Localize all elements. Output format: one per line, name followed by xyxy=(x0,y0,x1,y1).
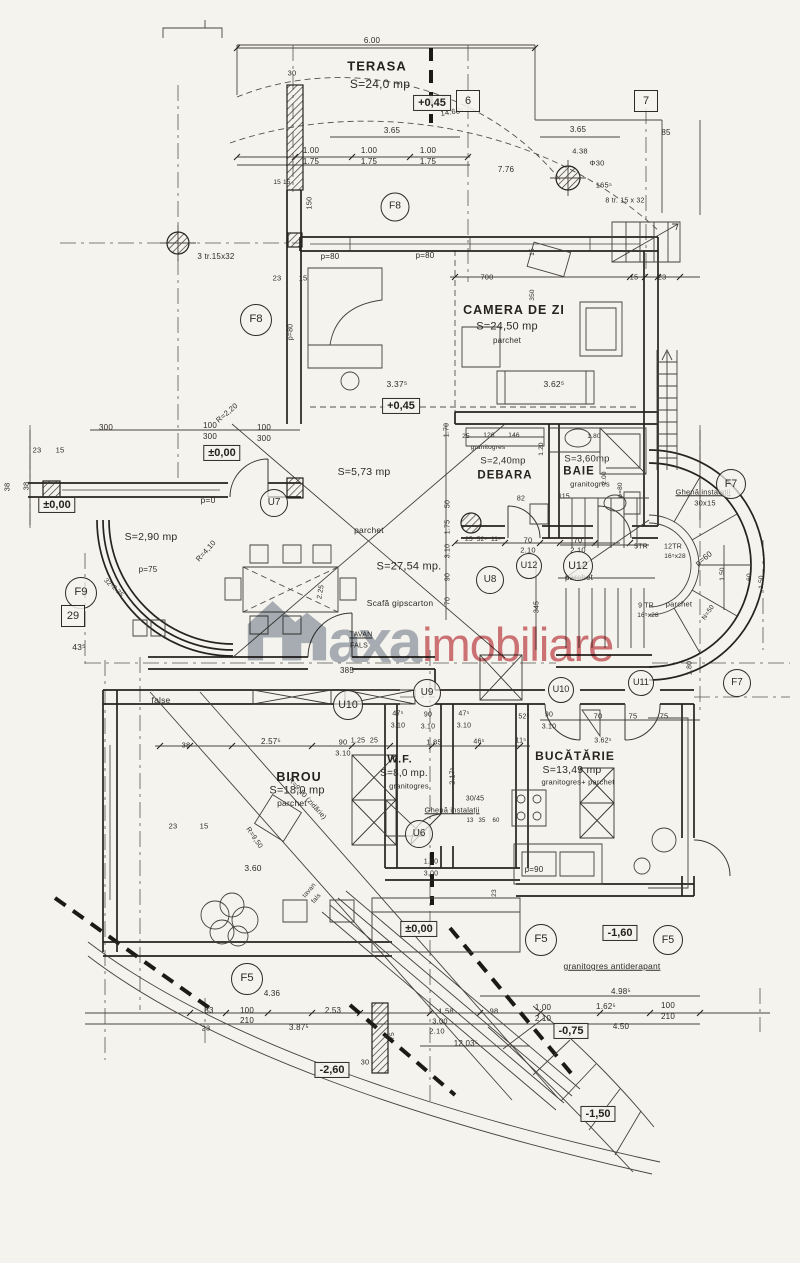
dim-label: 16⁵x28 xyxy=(664,554,686,561)
dim-label: 4.38 xyxy=(572,147,587,155)
dim-label: 7.76 xyxy=(498,166,514,174)
tag-u7: U7 xyxy=(260,489,288,517)
dim-label: S=8,0 mp. xyxy=(380,769,428,779)
dim-label: 3.10 xyxy=(457,723,471,730)
dim-label: 2.10 xyxy=(535,1015,551,1023)
dim-label: Φ30 xyxy=(590,159,605,167)
tag-u6: U6 xyxy=(405,820,433,848)
dim-label: 38 xyxy=(3,483,11,492)
dim-label: 6.00 xyxy=(364,37,380,45)
dim-label: 75 xyxy=(660,712,669,720)
dim-label: 15 xyxy=(530,248,537,256)
dim-label: 3.62⁵ xyxy=(543,380,564,389)
dim-label: 3.00 xyxy=(424,871,438,878)
dim-label: S=27,54 mp. xyxy=(377,562,442,573)
dim-label: p=75 xyxy=(139,566,158,574)
dim-label: Ghenă instalații xyxy=(425,806,480,814)
dim-label: 1.00 xyxy=(361,147,377,155)
dim-label: 30/45 xyxy=(466,796,485,803)
dim-label: 4.36 xyxy=(264,990,280,998)
level-marker: -1,50 xyxy=(580,1106,615,1122)
dim-label: 11⁵ xyxy=(516,738,527,745)
dim-label: 52⁵ xyxy=(518,714,529,721)
dim-label: S=2,90 mp xyxy=(125,532,178,543)
dim-label: 3.37⁵ xyxy=(386,380,407,389)
tag-f5: F5 xyxy=(653,925,683,955)
room-label: BIROU xyxy=(276,771,321,784)
tag-u12: U12 xyxy=(516,553,542,579)
dim-label: 5TR xyxy=(634,544,648,551)
dim-label: 3.10 xyxy=(335,749,350,757)
tag-u12: U12 xyxy=(563,551,593,581)
room-label: TERASA xyxy=(347,60,406,73)
dim-label: 30 xyxy=(288,69,297,77)
dim-label: 1.00 xyxy=(420,147,436,155)
dim-label: 25 xyxy=(465,537,473,544)
dim-label: 82 xyxy=(517,496,525,503)
tag-f8: F8 xyxy=(381,193,410,222)
dim-label: 3.00 xyxy=(432,1017,447,1025)
dim-label: 75 xyxy=(390,1032,397,1040)
dim-label: 2.10 xyxy=(429,1027,444,1035)
tag-u11: U11 xyxy=(628,670,654,696)
dim-label: 75 xyxy=(629,712,638,720)
dim-label: 43⁵ xyxy=(72,643,86,652)
dim-label: 1.70 xyxy=(444,423,451,437)
grid-tag-6: 6 xyxy=(456,90,480,112)
level-marker: ±0,00 xyxy=(400,921,437,937)
dim-label: 13 xyxy=(466,818,473,824)
dim-label: 3 tr.15x32 xyxy=(197,253,234,261)
dim-label: granitogres+ parchet xyxy=(541,778,614,786)
dim-label: 126 xyxy=(483,433,494,440)
dim-label: parchet xyxy=(493,337,521,345)
dim-label: 23 xyxy=(273,274,282,282)
dim-label: 1.50 xyxy=(759,575,766,588)
dim-label: parchet xyxy=(354,526,384,535)
dim-label: 300 xyxy=(99,424,113,432)
dim-label: 15 xyxy=(56,446,65,454)
dim-label: 35 xyxy=(478,818,485,824)
dim-label: p=80 xyxy=(288,324,295,341)
dim-label: 1.85 xyxy=(426,738,441,746)
dim-label: 3.62⁵ xyxy=(594,738,612,745)
room-label: BAIE xyxy=(563,466,594,478)
dim-label: 1.00 xyxy=(424,859,438,866)
dim-label: 83 xyxy=(204,1007,213,1015)
dim-label: p=90 xyxy=(525,866,544,874)
room-label: DEBARA xyxy=(477,470,532,482)
tag-f5: F5 xyxy=(231,963,263,995)
dim-label: 100 xyxy=(661,1002,675,1010)
dim-label: 15 xyxy=(630,273,639,281)
tag-f5: F5 xyxy=(525,924,557,956)
dim-label: 38 xyxy=(182,741,191,749)
dim-label: 90 xyxy=(339,738,348,746)
dim-label: 23 xyxy=(492,889,499,897)
dim-label: 350 xyxy=(530,289,537,300)
level-marker: +0,45 xyxy=(382,398,420,414)
dim-label: 100 xyxy=(240,1007,254,1015)
dim-label: 100 xyxy=(203,422,217,430)
dim-label: 85 xyxy=(661,129,670,137)
dim-label: 1.50 xyxy=(720,567,727,580)
dim-label: 1.58 xyxy=(438,1007,453,1015)
tag-f7: F7 xyxy=(723,669,751,697)
dim-label: 25 xyxy=(370,738,378,745)
dim-label: S=24,50 mp xyxy=(476,322,538,333)
dim-label: p=0 xyxy=(200,496,215,505)
dim-label: 30x15 xyxy=(694,499,715,507)
dim-label: p=80 xyxy=(321,253,340,261)
dim-label: 1.75 xyxy=(361,158,377,166)
dim-label: 210 xyxy=(661,1013,675,1021)
dim-label: S=5,73 mp xyxy=(338,467,391,478)
dim-label: 15 xyxy=(299,274,308,282)
tag-u9: U9 xyxy=(413,679,441,707)
tag-f7: F7 xyxy=(716,469,746,499)
dim-label: 23 xyxy=(202,1024,211,1032)
tag-u8: U8 xyxy=(476,566,504,594)
dim-label: 4.98⁵ xyxy=(611,988,631,996)
dim-label: 345 xyxy=(534,601,541,613)
dim-label: 15 15 xyxy=(273,180,290,187)
room-label: BUCĂTĂRIE xyxy=(535,750,615,762)
dim-label: 70 xyxy=(524,536,533,544)
level-marker: -2,60 xyxy=(314,1062,349,1078)
dim-label: p=80 xyxy=(618,482,625,497)
dim-label: 52⁵ xyxy=(477,537,488,544)
dim-label: granitogres xyxy=(471,445,506,452)
dim-label: 15 xyxy=(200,822,209,830)
dim-label: Scafă gipscarton xyxy=(367,599,434,608)
tag-u10: U10 xyxy=(333,690,363,720)
dim-label: 90 xyxy=(545,712,553,719)
dim-label: granitogres antiderapant xyxy=(564,962,661,971)
dim-label: 90 xyxy=(445,573,452,581)
dim-label: 8 tr. 15 x 32 xyxy=(605,198,644,205)
dim-label: 23 xyxy=(33,446,42,454)
level-marker: -0,75 xyxy=(553,1023,588,1039)
dim-label: 100 xyxy=(257,424,271,432)
dim-label: 3.10 xyxy=(421,724,435,731)
dim-label: 70 xyxy=(574,536,583,544)
dim-label: parchet xyxy=(666,600,692,608)
dim-label: 4.50 xyxy=(613,1023,629,1031)
dim-label: TAVAN xyxy=(350,632,373,639)
floor-plan-canvas: 6.00TERASAS=24,0 mp3014.68⁵3.653.65851.0… xyxy=(0,0,800,1263)
level-marker: +0,45 xyxy=(413,95,451,111)
dim-label: 9 TR xyxy=(638,603,654,610)
dim-label: 1.00 xyxy=(535,1004,551,1012)
dim-label: 23 xyxy=(169,822,178,830)
dim-label: S=24,0 mp xyxy=(350,78,410,90)
dim-label: 1.80 xyxy=(687,661,694,675)
dim-label: 1.80 xyxy=(587,434,600,441)
level-marker: ±0,00 xyxy=(203,445,240,461)
dim-label: 115 xyxy=(558,494,570,501)
dim-label: 300 xyxy=(257,435,271,443)
dim-label: S=13,49 mp xyxy=(543,765,602,776)
dim-label: 60 xyxy=(747,573,754,581)
dim-label: 2.57⁵ xyxy=(261,738,281,746)
dim-label: 30 xyxy=(361,1058,370,1066)
dim-label: 11⁵ xyxy=(491,537,501,544)
grid-tag-29: 29 xyxy=(61,605,85,627)
dim-label: 38 xyxy=(22,482,30,491)
dim-label: 150 xyxy=(305,196,313,209)
dim-label: false xyxy=(152,696,171,705)
tag-u10: U10 xyxy=(548,677,574,703)
dim-label: 210 xyxy=(240,1017,254,1025)
dim-label: 12,03⁵ xyxy=(454,1040,479,1048)
dim-label: 3.10 xyxy=(445,544,452,558)
dim-label: 146 xyxy=(508,433,519,440)
level-marker: -1,60 xyxy=(602,925,637,941)
dim-label: 47⁵ xyxy=(458,711,469,718)
dim-label: 165⁵ xyxy=(596,181,612,189)
dim-label: 12TR xyxy=(664,544,682,551)
dim-label: 385 xyxy=(340,667,354,675)
grid-tag-7: 7 xyxy=(634,90,658,112)
dim-label: 1.62⁵ xyxy=(596,1003,616,1011)
dim-label: 25 xyxy=(462,434,470,441)
dim-label: 70 xyxy=(594,712,603,720)
dim-label: p=80 xyxy=(416,252,435,260)
dim-label: 3.10 xyxy=(542,724,556,731)
dim-label: 1.25 xyxy=(351,738,365,745)
dim-label: 2.53 xyxy=(325,1007,341,1015)
dim-label: 16⁵x28 xyxy=(637,613,659,620)
dim-label: S=3,60mp xyxy=(564,454,609,464)
dim-label: 1.20 xyxy=(539,442,546,455)
dim-label: 50 xyxy=(445,500,452,508)
level-marker: ±0,00 xyxy=(38,497,75,513)
dim-label: S=2,40mp xyxy=(480,456,525,466)
dim-label: 700 xyxy=(480,273,493,281)
dim-label: 3.10 xyxy=(391,723,405,730)
dim-label: FALS xyxy=(350,643,368,650)
dim-label: granitogres xyxy=(389,782,429,790)
dim-label: 98 xyxy=(490,1007,499,1015)
plan-linework xyxy=(0,0,800,1263)
dim-label: 1.75 xyxy=(445,520,452,534)
dim-label: 60 xyxy=(492,818,499,824)
dim-label: 70 xyxy=(445,597,452,605)
dim-label: 1.75 xyxy=(303,158,319,166)
dim-label: 23 xyxy=(658,273,667,281)
dim-label: 3.60 xyxy=(244,864,261,873)
dim-label: 46⁵ xyxy=(473,739,484,746)
dim-label: 2.00 xyxy=(602,471,609,484)
room-label: CAMERA DE ZI xyxy=(463,304,565,317)
dim-label: 90 xyxy=(424,712,432,719)
dim-label: 1.00 xyxy=(303,147,319,155)
dim-label: 3.87⁵ xyxy=(289,1024,309,1032)
room-label: W.F. xyxy=(387,755,412,766)
dim-label: 1.75 xyxy=(420,158,436,166)
dim-label: 3.65 xyxy=(384,127,400,135)
tag-f8: F8 xyxy=(240,304,272,336)
dim-label: 47⁵ xyxy=(392,711,403,718)
dim-label: 2.17⁵ xyxy=(450,767,457,785)
dim-label: 300 xyxy=(203,433,217,441)
dim-label: 3.65 xyxy=(570,126,586,134)
